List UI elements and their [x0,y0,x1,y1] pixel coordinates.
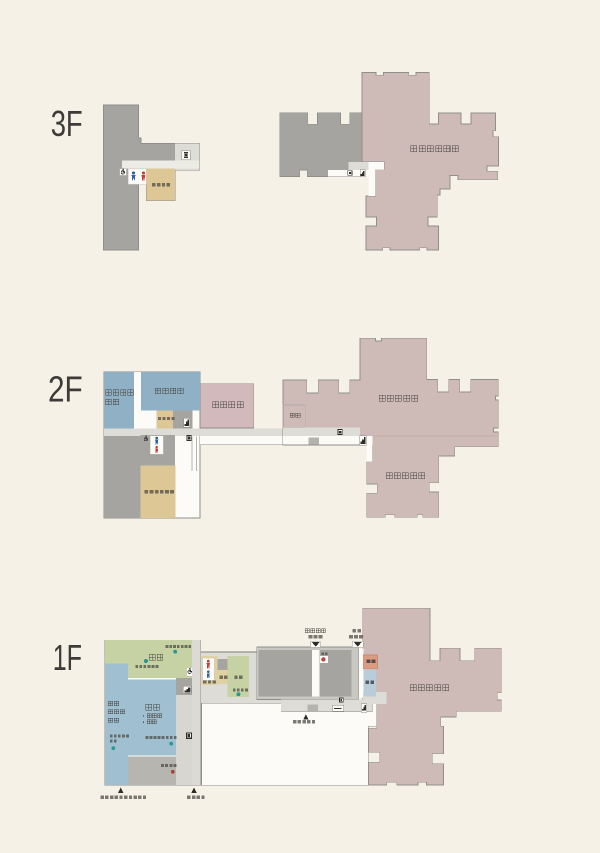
svg-text:3F: 3F [51,103,83,144]
svg-text:2F: 2F [48,368,83,409]
svg-text:1F: 1F [53,637,82,678]
